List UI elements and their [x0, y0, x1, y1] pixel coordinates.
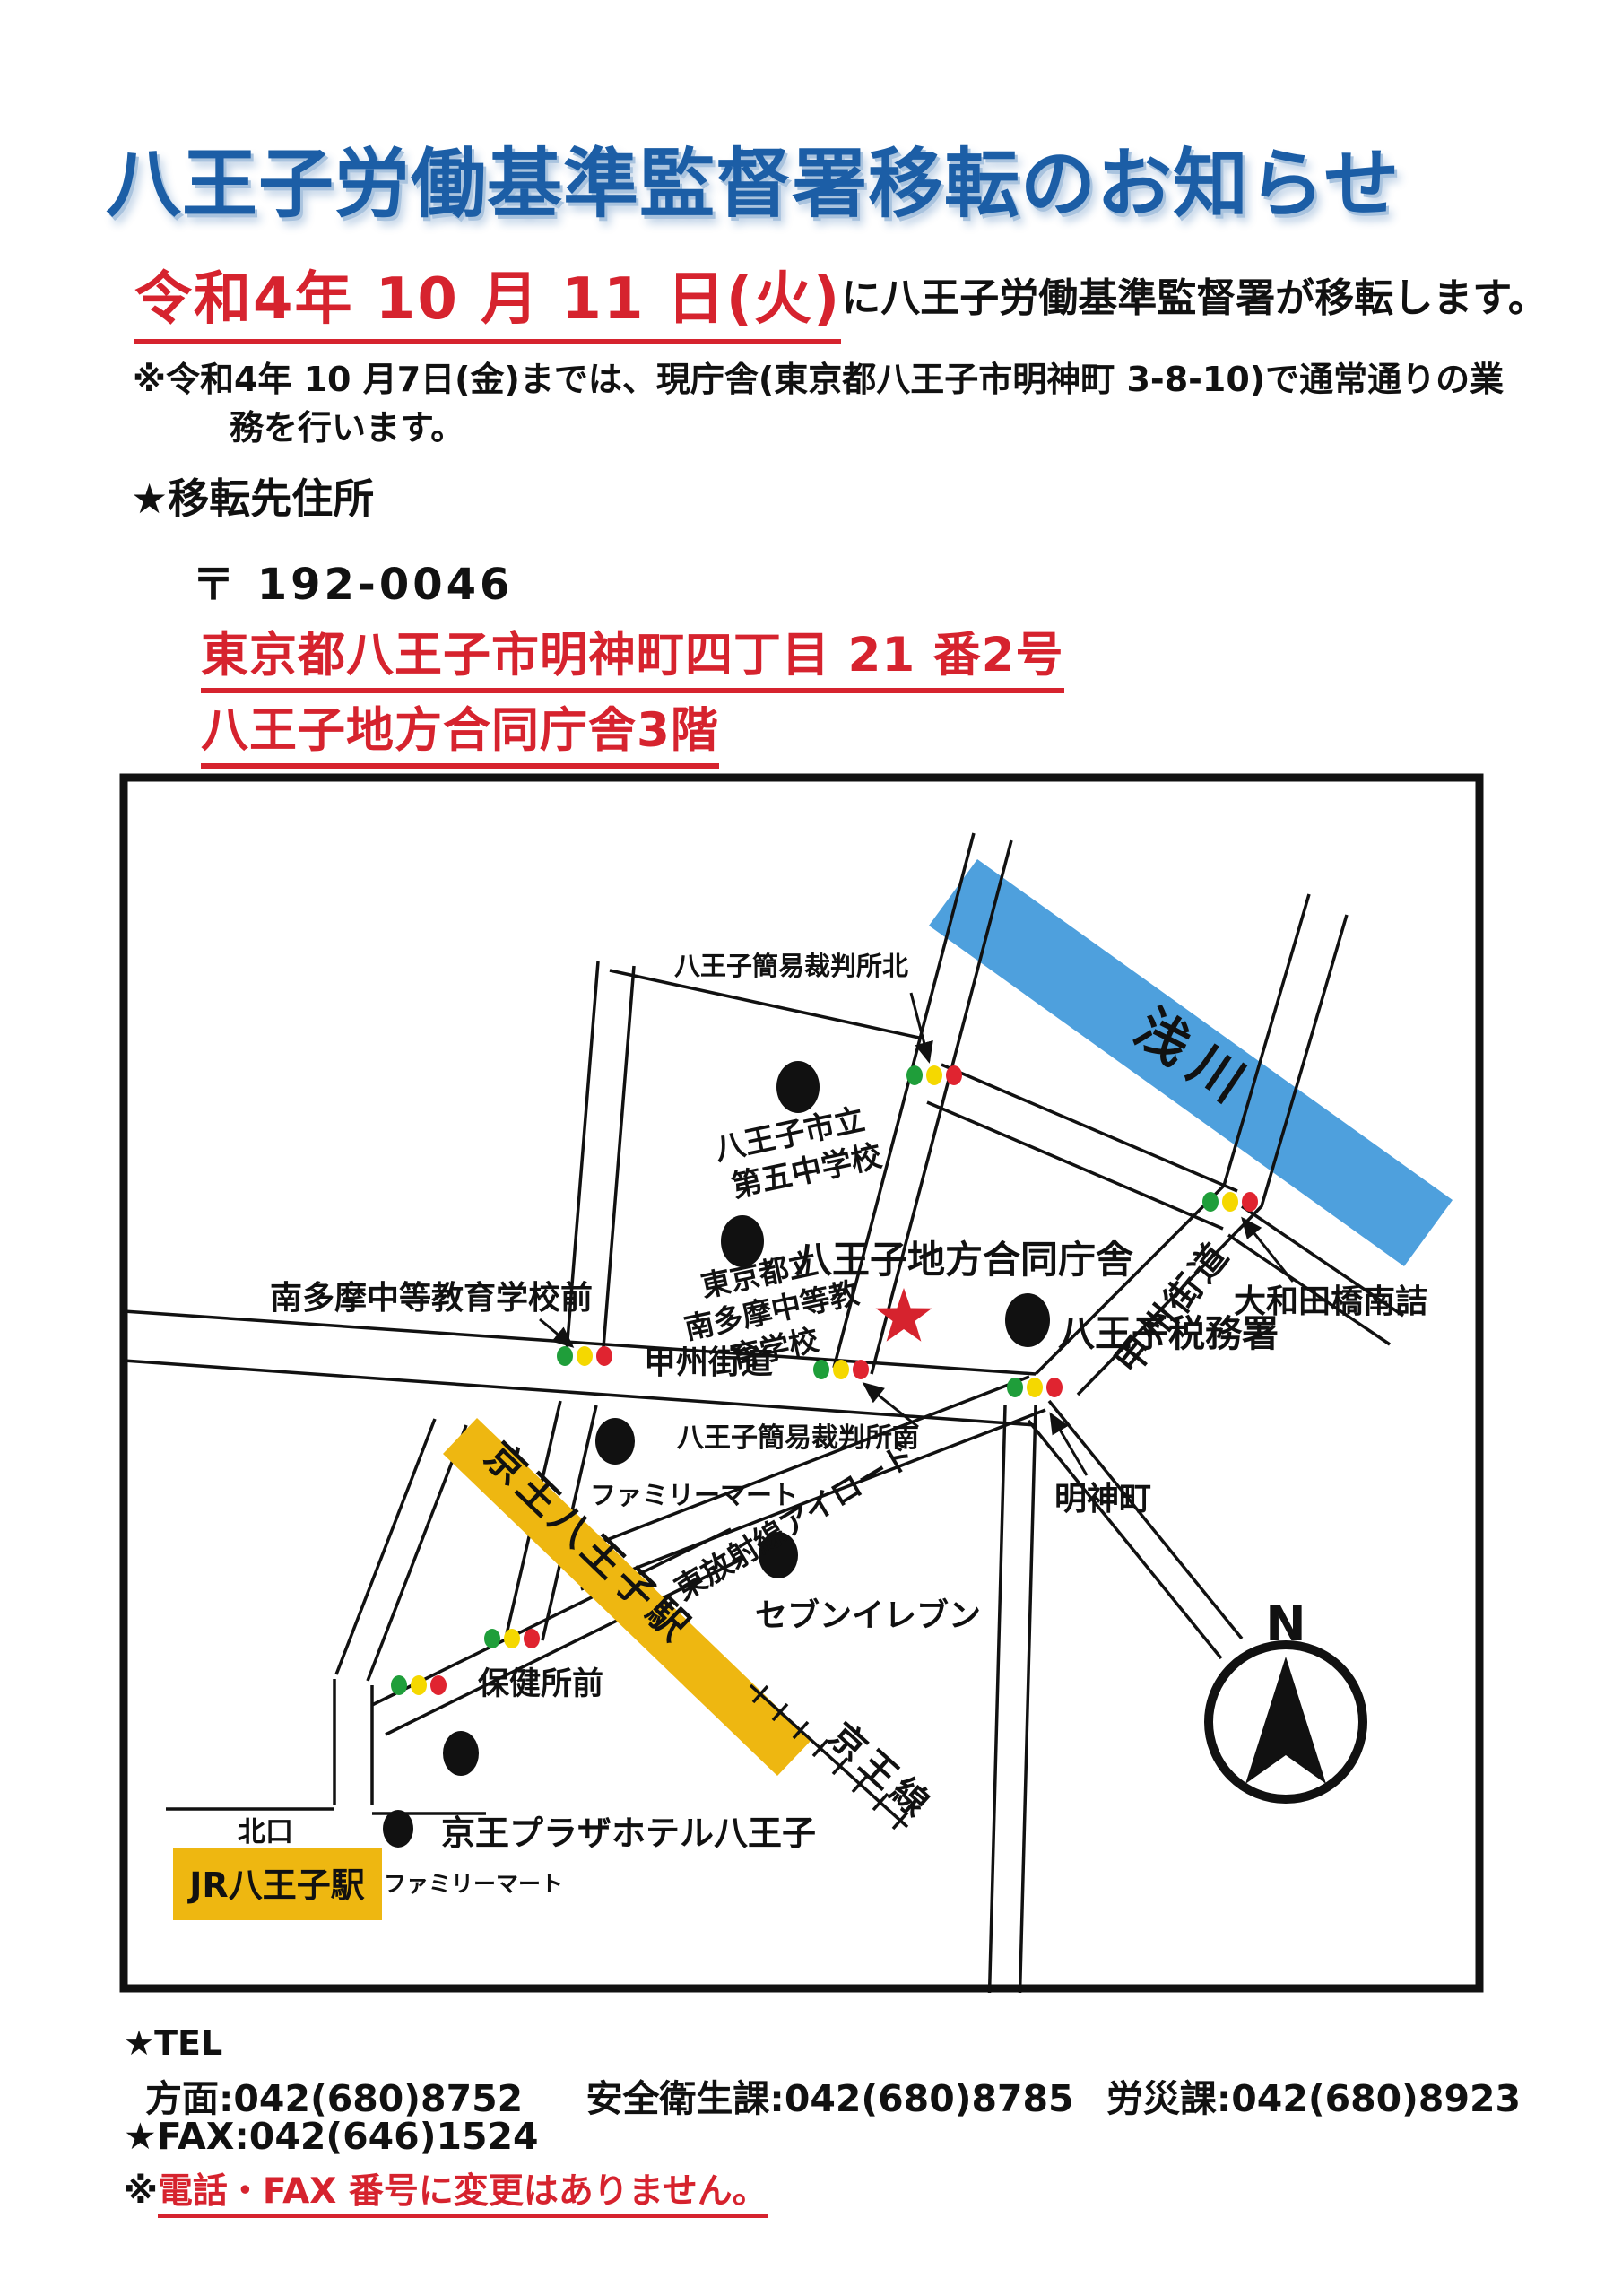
signal-hokenjo — [391, 1675, 447, 1695]
seven-eleven-label: セブンイレブン — [755, 1596, 981, 1634]
court-north-label: 八王子簡易裁判所北 — [674, 951, 908, 981]
godochosha-label: 八王子地方合同庁舎 — [794, 1238, 1133, 1282]
notice-page: 八王子労働基準監督署移転のお知らせ 令和4年 10 月 11 日(火)に八王子労… — [0, 0, 1622, 2296]
relocation-address-heading: ★移転先住所 — [131, 466, 374, 526]
address-line-2: 八王子地方合同庁舎3階 — [201, 692, 719, 769]
hokenjo-label: 保健所前 — [478, 1666, 603, 1702]
fax-line: ★FAX:042(646)1524 — [124, 2115, 539, 2158]
postal-code: 〒 192-0046 — [192, 549, 513, 612]
notice-title: 八王子労働基準監督署移転のお知らせ — [106, 124, 1540, 232]
signal-hokenjo-upper — [484, 1629, 540, 1648]
tel-item-rosai: 労災課:042(680)8923 — [1106, 2077, 1521, 2120]
tel-item-homen: 方面:042(680)8752 — [145, 2077, 523, 2120]
keio-plaza-dot — [443, 1731, 479, 1776]
school1-dot — [776, 1061, 820, 1113]
signal-myojincho — [1007, 1378, 1063, 1397]
tel-numbers-line: 方面:042(680)8752 安全衛生課:042(680)8785 労災課:0… — [145, 2068, 1521, 2122]
relocation-date-suffix: に八王子労働基準監督署が移転します。 — [841, 275, 1548, 321]
location-map: 浅川 — [119, 773, 1484, 1993]
relocation-date-line: 令和4年 10 月 11 日(火)に八王子労働基準監督署が移転します。 — [134, 253, 1548, 344]
familymart1-label: ファミリーマート — [590, 1480, 798, 1510]
myojincho-label: 明神町 — [1054, 1481, 1151, 1518]
kitaguchi-label: 北口 — [238, 1816, 293, 1848]
note-line-1: ※令和4年 10 月7日(金)までは、現庁舎(東京都八王子市明神町 3-8-10… — [133, 352, 1504, 401]
phone-note-prefix: ※ — [124, 2171, 158, 2212]
phone-note-text: 電話・FAX 番号に変更はありません。 — [158, 2171, 768, 2218]
signal-court-north — [906, 1065, 962, 1085]
tax-office-label: 八王子税務署 — [1058, 1312, 1279, 1355]
signal-court-south — [813, 1360, 869, 1379]
keio-plaza-label: 京王プラザホテル八王子 — [441, 1813, 816, 1853]
koshu-kaido-west-label: 甲州街道 — [644, 1344, 773, 1381]
compass-n-label: N — [1265, 1596, 1305, 1652]
jr-station-label: JR八王子駅 — [186, 1865, 364, 1905]
signal-school-stop — [557, 1346, 612, 1366]
phone-note: ※電話・FAX 番号に変更はありません。 — [124, 2163, 768, 2213]
address-line-1: 東京都八王子市明神町四丁目 21 番2号 — [201, 617, 1064, 693]
relocation-date: 令和4年 10 月 11 日(火) — [134, 253, 841, 344]
tax-office-dot — [1005, 1293, 1050, 1347]
familymart2-label: ファミリーマート — [384, 1871, 563, 1897]
school-stop-label: 南多摩中等教育学校前 — [270, 1279, 593, 1317]
signal-owada — [1202, 1192, 1258, 1212]
tel-heading: ★TEL — [124, 2023, 222, 2063]
tel-item-anzen: 安全衛生課:042(680)8785 — [585, 2077, 1073, 2120]
familymart1-dot — [595, 1418, 635, 1465]
map-svg: 浅川 — [119, 773, 1484, 1993]
familymart2-dot — [383, 1810, 413, 1848]
note-line-2: 務を行います。 — [230, 400, 464, 449]
